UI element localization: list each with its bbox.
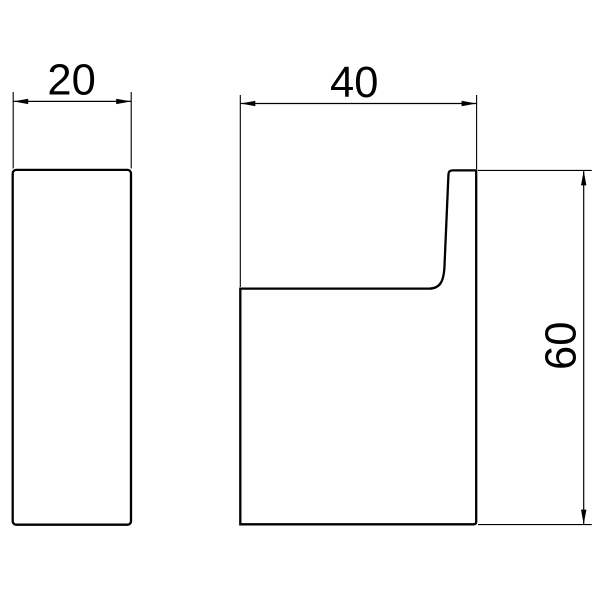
svg-text:20: 20 [47,57,95,105]
svg-text:40: 40 [330,59,378,107]
svg-text:60: 60 [538,322,586,370]
